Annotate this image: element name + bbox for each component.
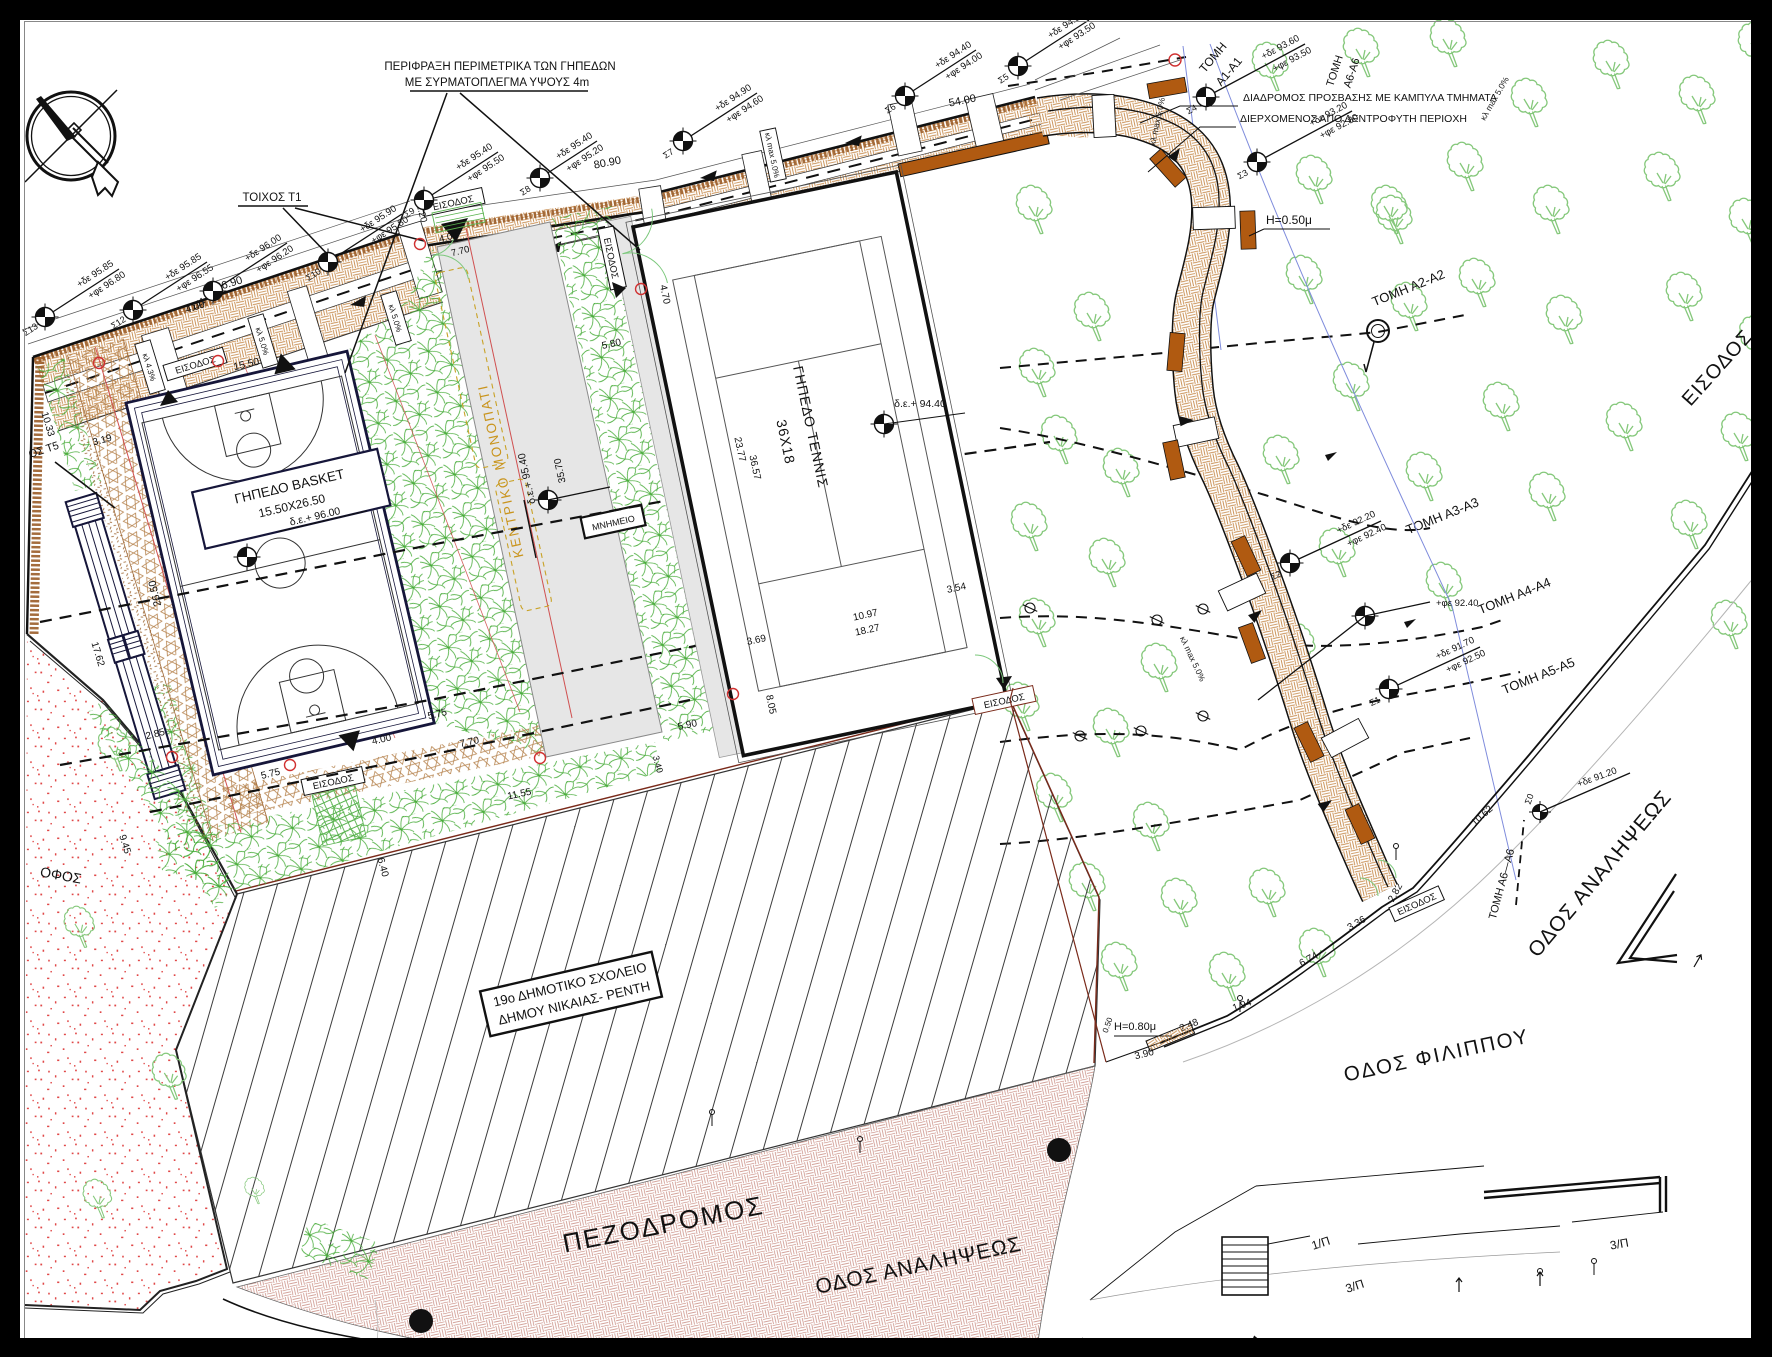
- svg-text:δ.ε.+ 94.40: δ.ε.+ 94.40: [894, 398, 946, 410]
- svg-text:ΔΙΑΔΡΟΜΟΣ ΠΡΟΣΒΑΣΗΣ ΜΕ ΚΑΜΠΥΛ: ΔΙΑΔΡΟΜΟΣ ΠΡΟΣΒΑΣΗΣ ΜΕ ΚΑΜΠΥΛΑ ΤΜΗΜΑΤΑ: [1243, 92, 1497, 104]
- svg-text:H=0.50μ: H=0.50μ: [1266, 213, 1312, 227]
- svg-text:ΠΕΡΙΦΡΑΞΗ ΠΕΡΙΜΕΤΡΙΚΑ ΤΩΝ ΓΗΠΕ: ΠΕΡΙΦΡΑΞΗ ΠΕΡΙΜΕΤΡΙΚΑ ΤΩΝ ΓΗΠΕΔΩΝ: [384, 61, 615, 73]
- svg-text:H=0.80μ: H=0.80μ: [1114, 1021, 1156, 1033]
- svg-text:ΜΕ ΣΥΡΜΑΤΟΠΛΕΓΜΑ ΥΨΟΥΣ 4m: ΜΕ ΣΥΡΜΑΤΟΠΛΕΓΜΑ ΥΨΟΥΣ 4m: [405, 77, 589, 89]
- svg-text:ΤΟΙΧΟΣ Τ1: ΤΟΙΧΟΣ Τ1: [242, 192, 301, 204]
- svg-text:+φε 92.40: +φε 92.40: [1436, 598, 1478, 609]
